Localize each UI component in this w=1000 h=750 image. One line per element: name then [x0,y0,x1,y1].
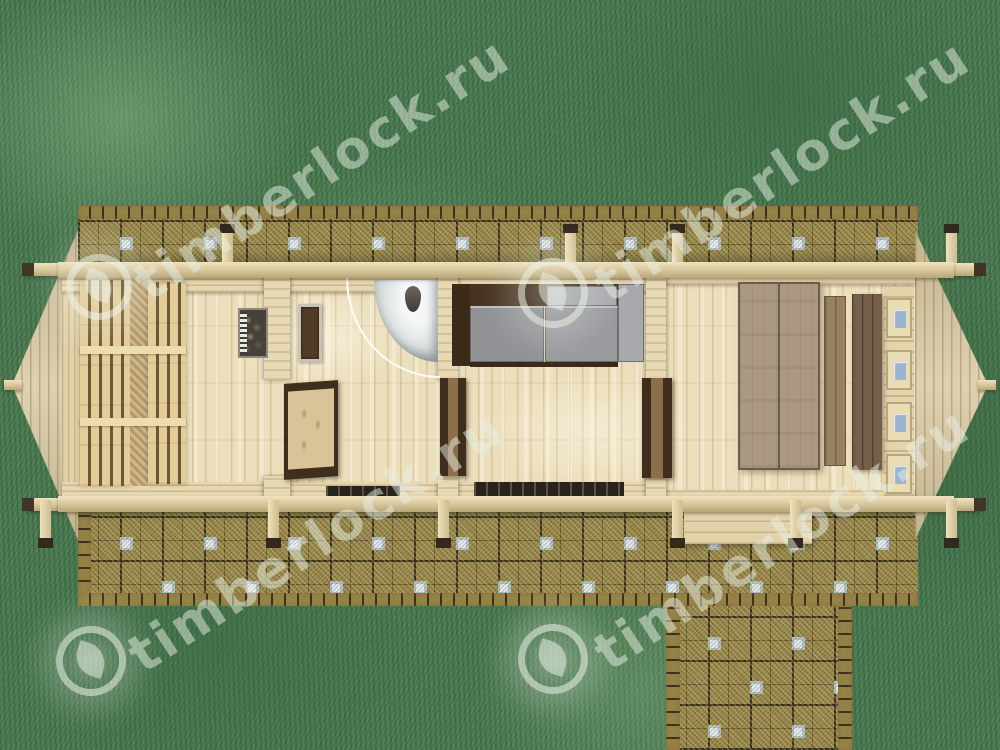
cabin-top-view-render: timberlock.ru timberlock.ru timberlock.r… [0,0,1000,750]
roof-post [946,230,957,264]
planter-glass-glint [894,362,906,380]
watermark-leaf-logo-icon [518,258,588,328]
roof-post [438,500,449,542]
roof-post-base [944,538,959,548]
terrace-table [738,282,820,470]
leaf-icon [533,272,572,311]
beam-tip [22,263,34,276]
roof-post [565,230,576,264]
roof-post-cap [563,224,578,233]
roof-post-base [38,538,53,548]
sauna-bench-lower [148,282,186,484]
railing-planter [886,298,912,338]
sauna-bench-rail [80,346,186,354]
door-open-washroom [284,380,338,480]
leaf-icon [81,268,117,304]
railing-planter [886,350,912,390]
planter-glass-glint [894,310,906,328]
beam-tip [22,498,34,511]
beam-tip [974,263,986,276]
terrace-bench [824,296,846,466]
sauna-bench-rail [80,418,186,426]
watermark-leaf-logo-icon [66,254,132,320]
washroom-window [298,304,322,362]
roof-post [40,500,51,542]
sauna-bench-step-face [130,280,148,486]
partition-living-terrace-bottom [646,476,666,498]
roof-post-base [436,538,451,548]
sauna-heater-vent [240,312,247,354]
sofa-front-rail [470,362,618,367]
roof-post [672,500,683,542]
apex-beam-left [4,380,22,390]
leaf-icon [533,638,572,677]
apex-beam-right [978,380,996,390]
beam-tip [974,498,986,511]
walkway-border-right [838,606,852,750]
roof-post-base [670,538,685,548]
roof-post [946,500,957,542]
door-open-terrace [642,378,672,478]
sofa-arm-left [452,284,470,366]
watermark-leaf-logo-icon [518,624,588,694]
leaf-icon [71,640,110,679]
watermark-leaf-logo-icon [56,626,126,696]
roof-post-cap [944,224,959,233]
